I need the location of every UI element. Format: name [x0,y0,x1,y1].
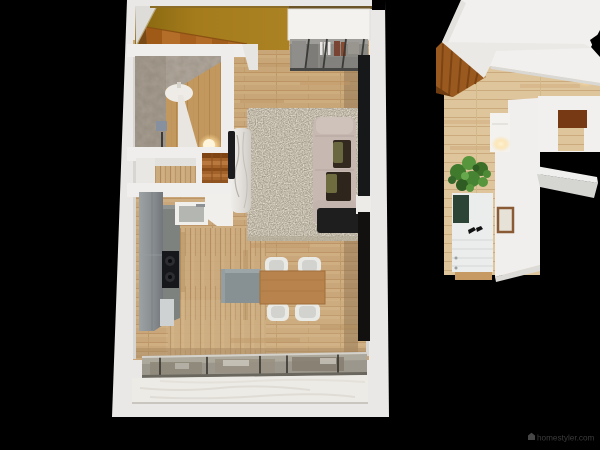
svg-text:homestyler.com: homestyler.com [537,434,595,443]
